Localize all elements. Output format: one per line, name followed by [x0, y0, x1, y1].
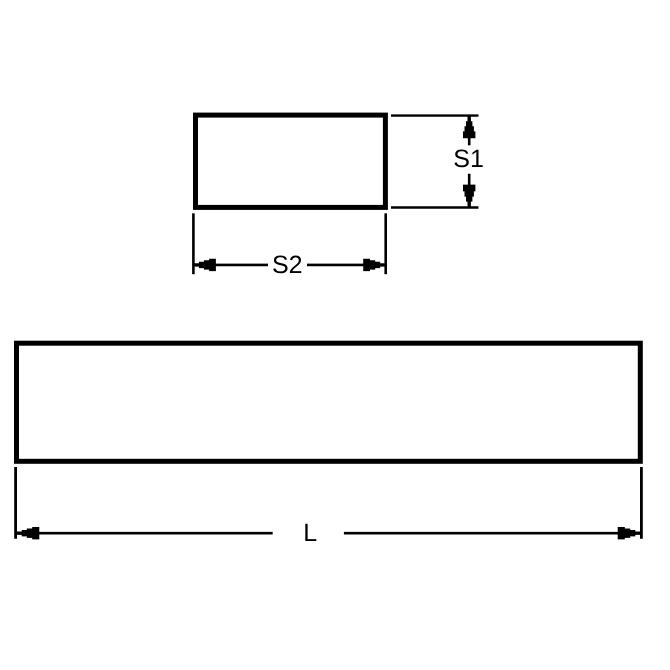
svg-text:S1: S1 — [453, 145, 484, 173]
svg-text:S2: S2 — [272, 251, 303, 279]
svg-text:L: L — [303, 519, 317, 547]
